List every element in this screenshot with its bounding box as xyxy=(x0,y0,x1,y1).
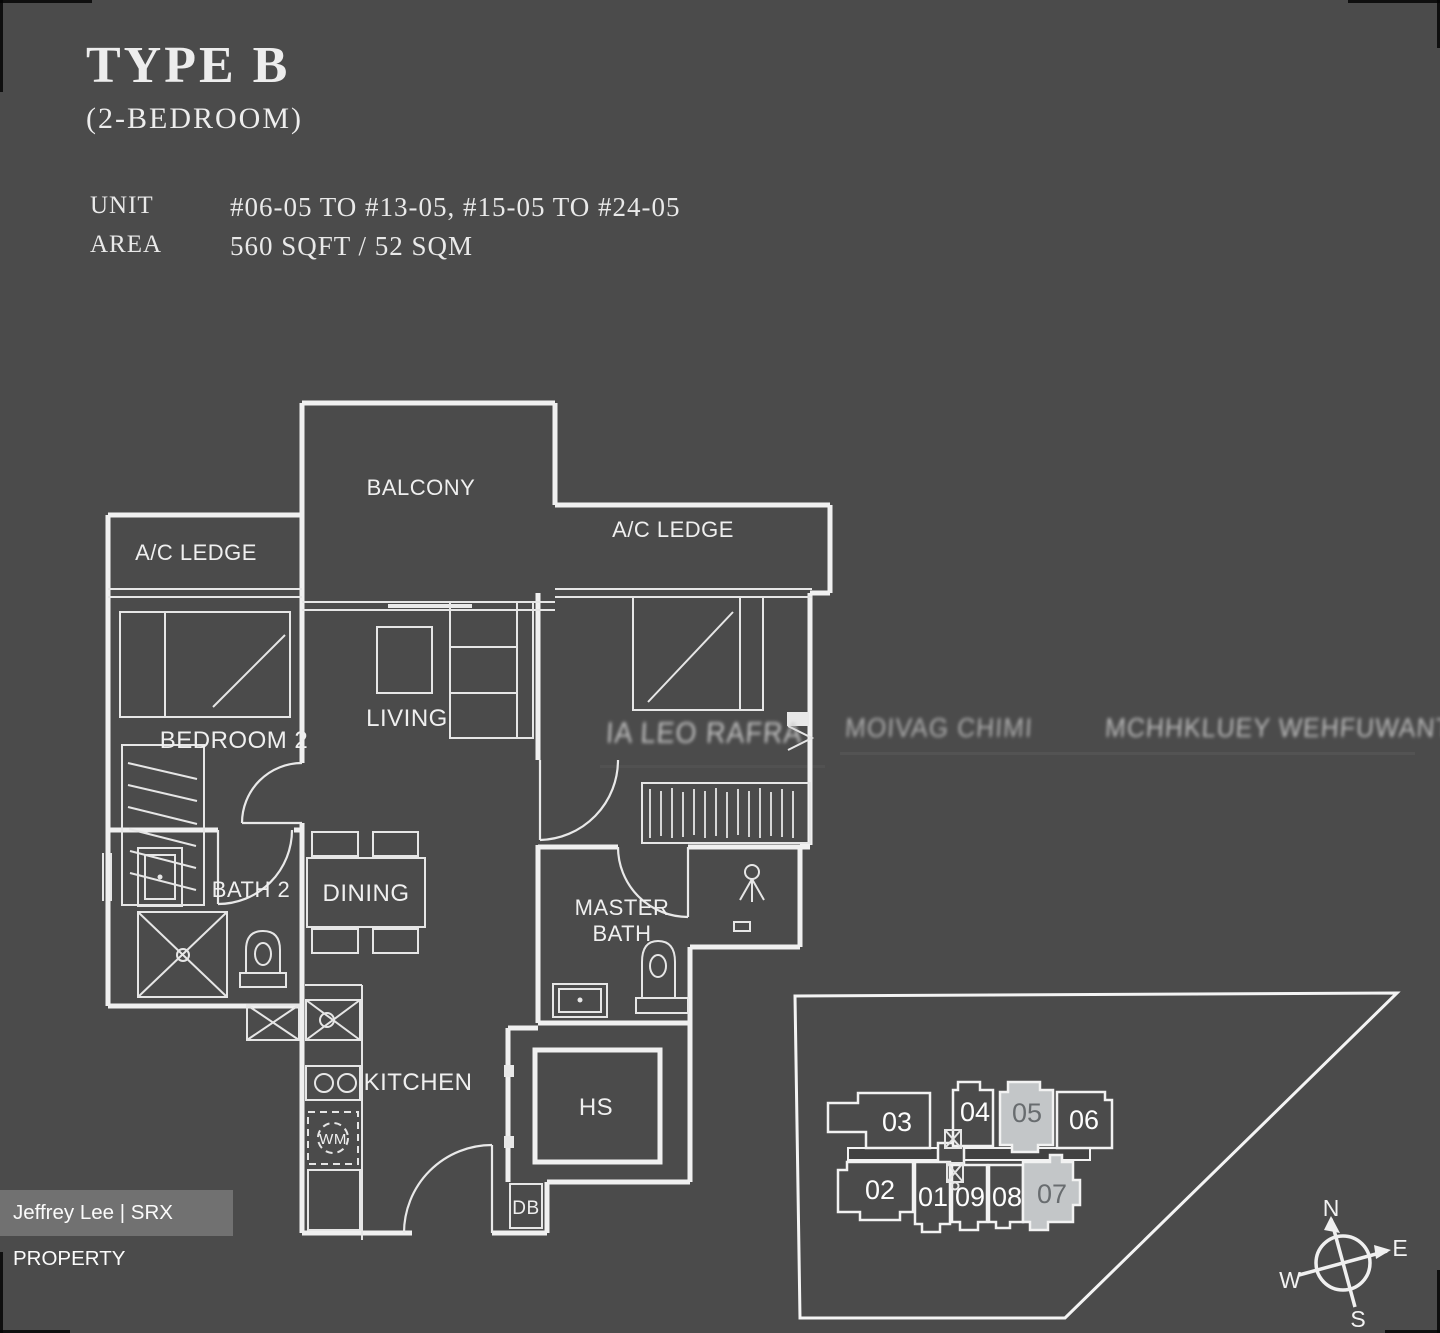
sofa xyxy=(450,602,533,738)
hs-label: HS xyxy=(579,1094,613,1121)
scan-artifact xyxy=(0,0,3,92)
toilet-bowl xyxy=(650,955,666,977)
unit-05-label: 05 xyxy=(1012,1098,1042,1128)
toilet-bath2 xyxy=(240,931,286,987)
watermark-bar: Jeffrey Lee | SRX PROPERTY xyxy=(0,1190,233,1236)
master-bath-label-line1: MASTER xyxy=(575,895,670,920)
siteplan: 03 04 05 06 02 01 09 08 07 xyxy=(795,993,1397,1318)
shower-master xyxy=(734,879,764,931)
smear-artifact xyxy=(840,752,1415,755)
unit-03 xyxy=(828,1093,930,1148)
scan-artifact xyxy=(0,1252,3,1333)
compass-n: N xyxy=(1323,1195,1340,1221)
wardrobe-master-hatch xyxy=(650,788,793,838)
unit-03-label: 03 xyxy=(882,1107,912,1137)
furniture xyxy=(120,597,812,1240)
wall-pier xyxy=(504,1065,514,1077)
bed-master xyxy=(633,597,763,710)
db-label: DB xyxy=(512,1198,539,1219)
ac-ledge-right-label: A/C LEDGE xyxy=(612,517,734,542)
smear-artifact xyxy=(600,765,825,768)
burner xyxy=(315,1074,333,1092)
room-labels: A/C LEDGE BALCONY A/C LEDGE BEDROOM 2 LI… xyxy=(135,475,734,1219)
entry-door xyxy=(404,1145,492,1233)
watermark-remnant-center: MOIVAG CHIMI xyxy=(844,713,1034,744)
floorplan-drawing: A/C LEDGE BALCONY A/C LEDGE BEDROOM 2 LI… xyxy=(0,0,1440,1333)
sink-dot xyxy=(158,875,163,880)
master-bath-label-line2: BATH xyxy=(592,921,651,946)
master-bedroom-label-distorted: IA LEO RAFRA xyxy=(605,717,803,750)
toilet-master xyxy=(636,941,688,1013)
compass-s: S xyxy=(1350,1306,1365,1332)
kitchen-label: KITCHEN xyxy=(364,1069,473,1096)
compass-e: E xyxy=(1392,1235,1407,1261)
unit-02-label: 02 xyxy=(865,1175,895,1205)
sink-dot xyxy=(578,998,583,1003)
bath2-label: BATH 2 xyxy=(212,877,290,902)
floorplan-page: TYPE B (2-BEDROOM) UNIT #06-05 TO #13-05… xyxy=(0,0,1440,1333)
unit-01-label: 01 xyxy=(918,1182,948,1212)
kitchen-cabinet xyxy=(308,1170,360,1230)
shaft-box xyxy=(247,1005,299,1040)
compass: N E S W xyxy=(1279,1195,1408,1332)
ac-ledge-left-label: A/C LEDGE xyxy=(135,540,257,565)
dining-label: DINING xyxy=(323,880,410,907)
unit-06-label: 06 xyxy=(1069,1105,1099,1135)
burner xyxy=(338,1074,356,1092)
master-bedroom-door xyxy=(540,760,618,840)
toilet-bowl xyxy=(255,943,271,965)
living-label: LIVING xyxy=(366,705,448,732)
bed-bedroom2 xyxy=(120,612,290,717)
compass-east-arrow xyxy=(1374,1245,1391,1259)
unit-08-label: 08 xyxy=(992,1182,1022,1212)
compass-needles xyxy=(1299,1219,1387,1307)
balcony-label: BALCONY xyxy=(367,475,476,500)
wm-label: WM xyxy=(319,1131,347,1148)
shower-head xyxy=(745,865,759,879)
coffee-table xyxy=(377,627,432,693)
scan-artifact xyxy=(0,0,92,3)
shower-bath2 xyxy=(138,912,227,997)
bedroom2-label: BEDROOM 2 xyxy=(160,727,309,754)
watermark-remnant-right: MCHHKLUEY WEHFUWANT xyxy=(1104,713,1440,744)
unit-09-label: 09 xyxy=(955,1182,985,1212)
wall-pier xyxy=(504,1136,514,1148)
scan-artifact xyxy=(1348,0,1440,3)
unit-07-label: 07 xyxy=(1037,1179,1067,1209)
bedroom2-door xyxy=(242,763,302,823)
compass-w: W xyxy=(1279,1267,1301,1293)
unit-04-label: 04 xyxy=(960,1097,990,1127)
